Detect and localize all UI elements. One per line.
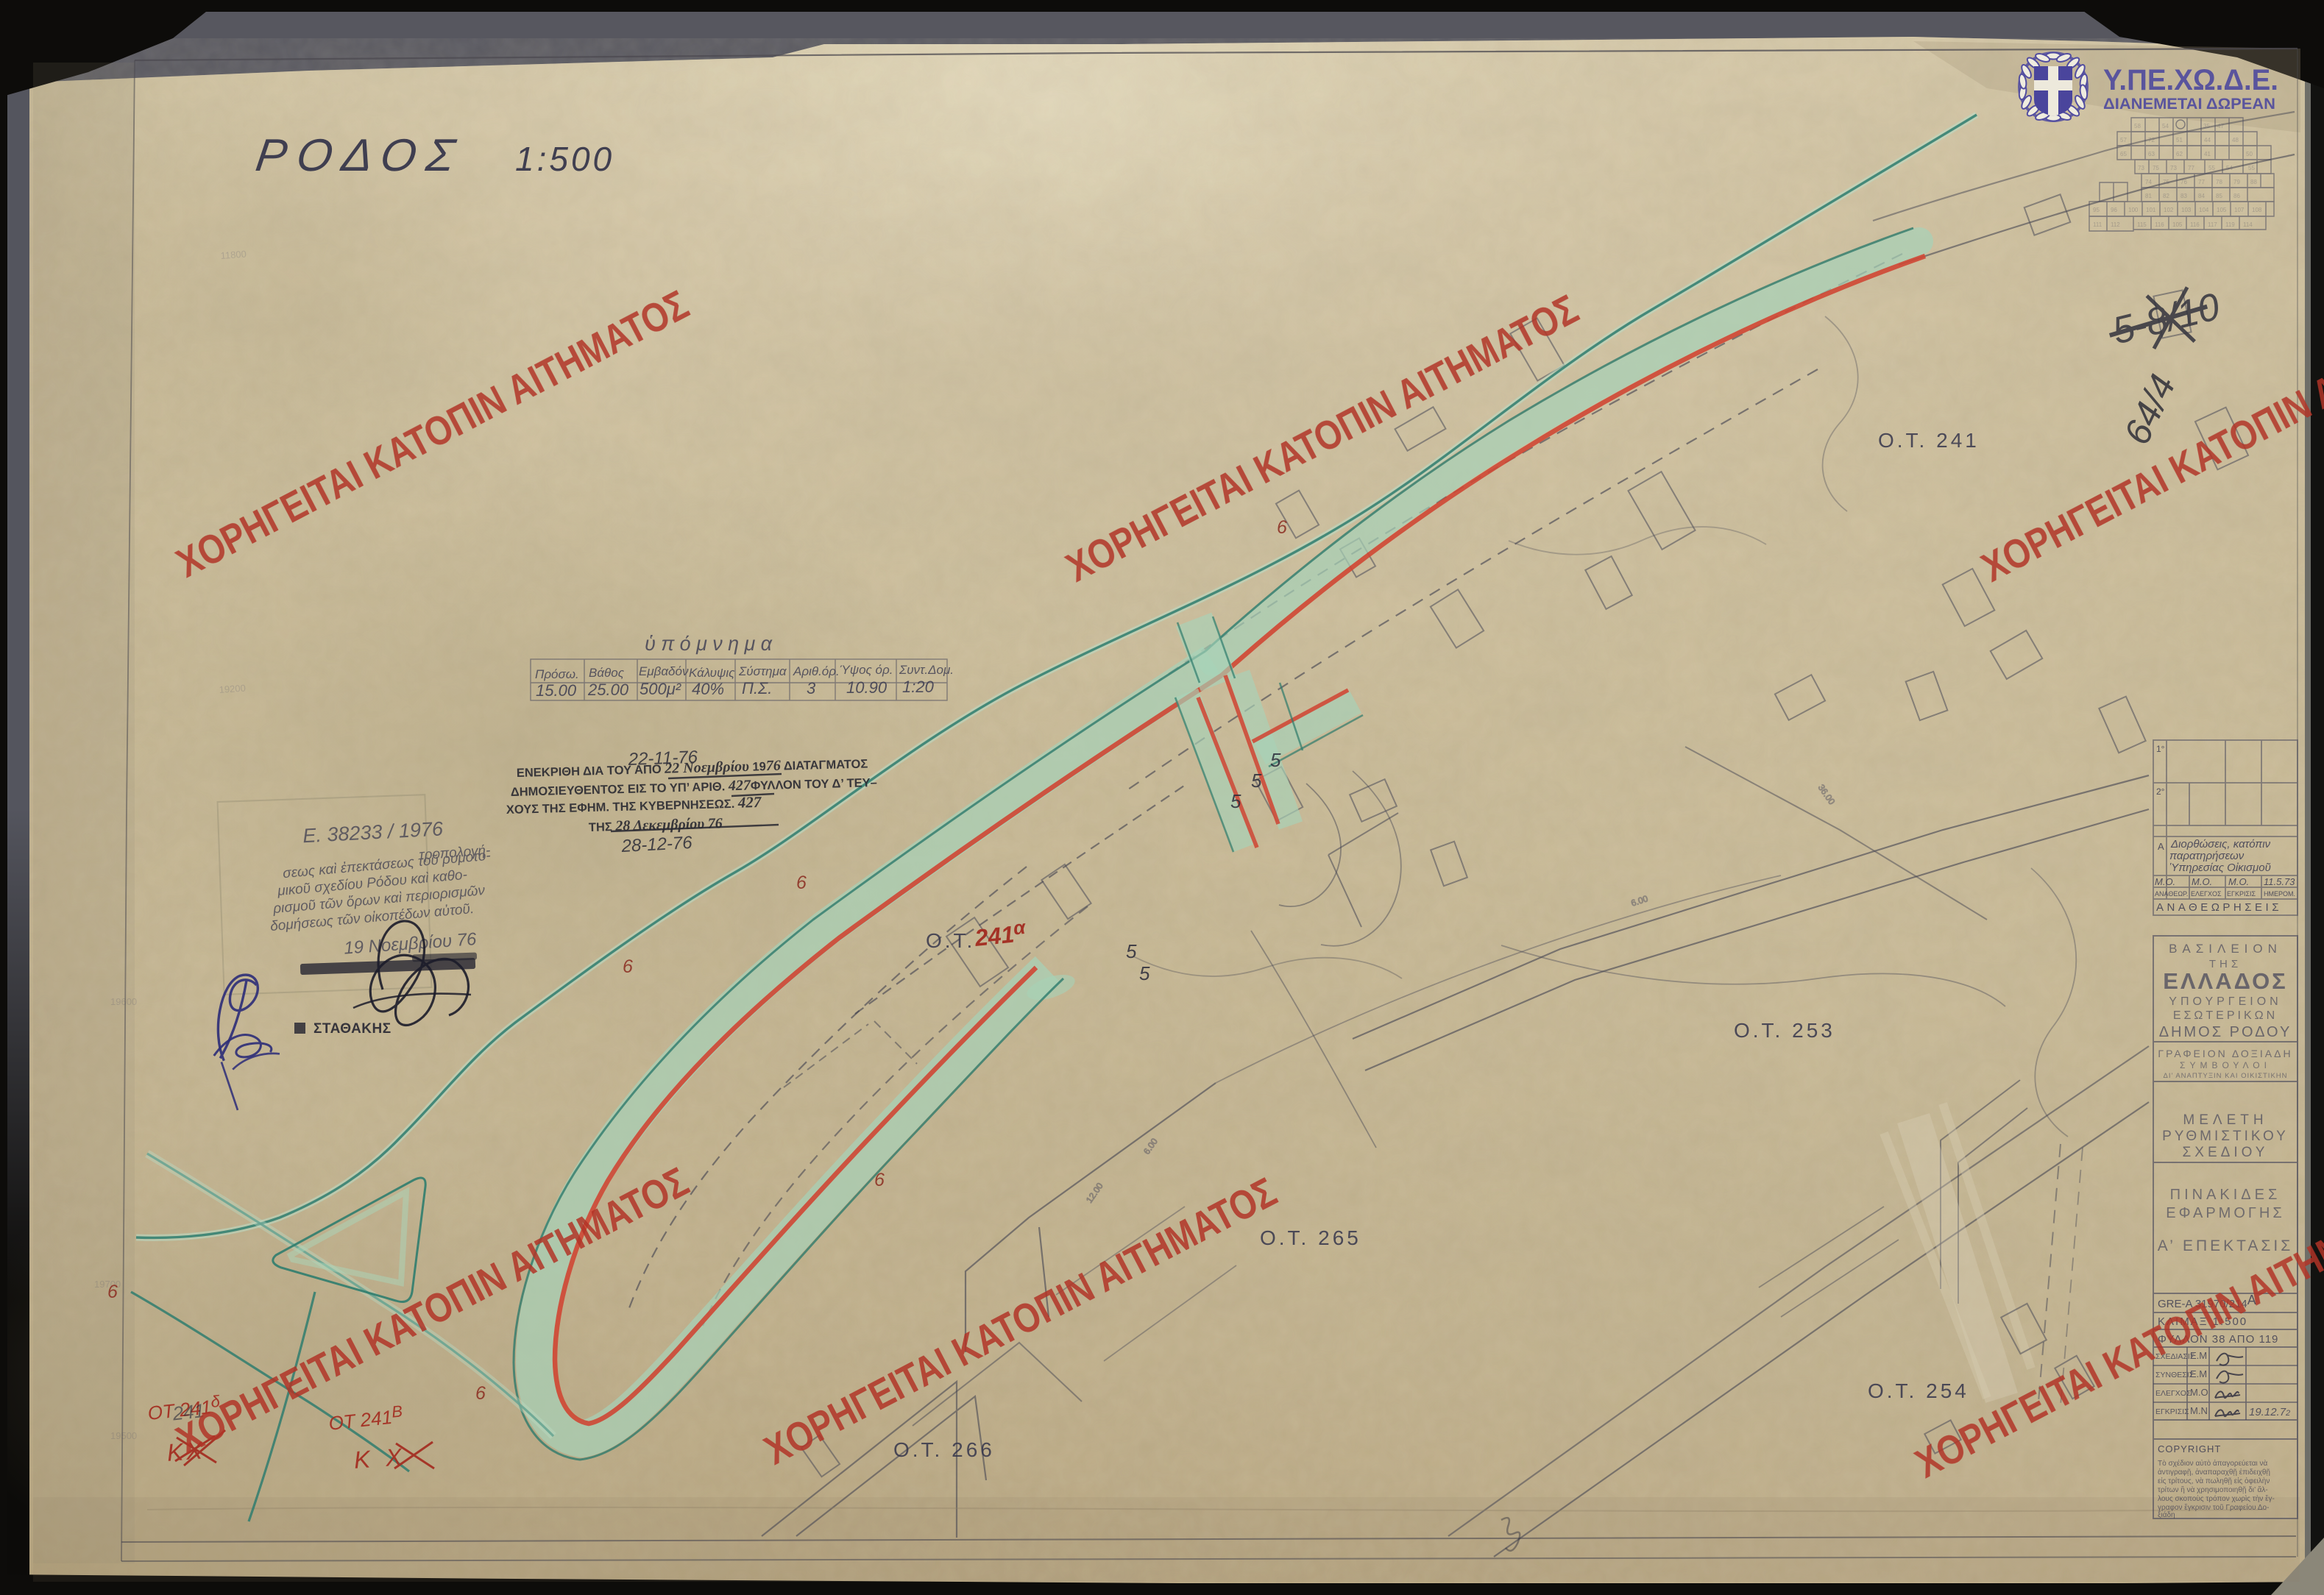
svg-text:114: 114 bbox=[2243, 221, 2253, 228]
svg-text:Αριθ.όρ.: Αριθ.όρ. bbox=[793, 664, 840, 678]
svg-text:Μ.Ν: Μ.Ν bbox=[2190, 1405, 2208, 1416]
svg-text:73: 73 bbox=[2138, 165, 2144, 171]
svg-text:72: 72 bbox=[2148, 137, 2155, 143]
svg-text:Συντ.Δομ.: Συντ.Δομ. bbox=[899, 663, 954, 677]
svg-text:3: 3 bbox=[807, 679, 816, 697]
svg-text:84: 84 bbox=[2198, 193, 2205, 199]
svg-text:Σύστημα: Σύστημα bbox=[738, 664, 787, 678]
svg-text:Π.Σ.: Π.Σ. bbox=[742, 679, 772, 697]
svg-text:Διορθώσεις, κατόπιν: Διορθώσεις, κατόπιν bbox=[2170, 838, 2271, 850]
svg-text:COPYRIGHT: COPYRIGHT bbox=[2158, 1443, 2221, 1454]
svg-text:19.12.72: 19.12.72 bbox=[2249, 1406, 2290, 1418]
svg-text:ΓΡΑΦΕΙΟΝ ΔΟΞΙΑΔΗ: ΓΡΑΦΕΙΟΝ ΔΟΞΙΑΔΗ bbox=[2158, 1048, 2292, 1059]
svg-text:Ε.Μ: Ε.Μ bbox=[2190, 1350, 2207, 1361]
svg-text:6: 6 bbox=[1277, 517, 1287, 538]
svg-text:107: 107 bbox=[2234, 207, 2245, 213]
svg-text:111: 111 bbox=[2093, 221, 2102, 228]
svg-text:58: 58 bbox=[2134, 123, 2141, 129]
svg-text:Α: Α bbox=[2158, 841, 2164, 852]
svg-text:19500: 19500 bbox=[110, 1430, 137, 1441]
svg-text:6: 6 bbox=[475, 1383, 486, 1404]
svg-text:ΡΟΔΟΣ: ΡΟΔΟΣ bbox=[252, 130, 467, 181]
svg-text:103: 103 bbox=[2181, 207, 2192, 213]
svg-text:Μ.Ο.: Μ.Ο. bbox=[2155, 876, 2175, 887]
svg-text:11.5.73: 11.5.73 bbox=[2264, 876, 2295, 887]
svg-text:Κάλυψις: Κάλυψις bbox=[689, 666, 735, 680]
svg-text:78: 78 bbox=[2216, 179, 2222, 185]
svg-text:5: 5 bbox=[1230, 790, 1241, 812]
svg-text:105: 105 bbox=[2217, 207, 2227, 213]
svg-text:81: 81 bbox=[2145, 193, 2152, 199]
svg-text:10.90: 10.90 bbox=[846, 678, 888, 697]
svg-text:O.T. 265: O.T. 265 bbox=[1260, 1226, 1361, 1249]
svg-text:100: 100 bbox=[2128, 207, 2139, 213]
svg-text:Ὑπηρεσίας Οἰκισμοῦ: Ὑπηρεσίας Οἰκισμοῦ bbox=[2169, 862, 2271, 874]
svg-text:6: 6 bbox=[796, 873, 807, 893]
svg-text:ΔΗΜΟΣ ΡΟΔΟΥ: ΔΗΜΟΣ ΡΟΔΟΥ bbox=[2159, 1024, 2292, 1040]
svg-text:ΗΜΕΡΟΜ.: ΗΜΕΡΟΜ. bbox=[2264, 890, 2295, 898]
svg-text:1:500: 1:500 bbox=[515, 140, 614, 178]
svg-text:105: 105 bbox=[2172, 221, 2183, 228]
svg-text:85: 85 bbox=[2216, 193, 2222, 199]
svg-text:44: 44 bbox=[2204, 137, 2211, 143]
svg-text:Ε.Μ: Ε.Μ bbox=[2190, 1368, 2207, 1379]
svg-text:Εμβαδόν: Εμβαδόν bbox=[639, 664, 689, 678]
svg-text:35: 35 bbox=[2203, 123, 2210, 129]
svg-text:Μ.Ο.: Μ.Ο. bbox=[2228, 876, 2249, 887]
svg-text:116: 116 bbox=[2155, 221, 2164, 228]
svg-text:76: 76 bbox=[2180, 179, 2187, 185]
svg-text:Βάθος: Βάθος bbox=[589, 666, 625, 680]
svg-text:Μ.Ο: Μ.Ο bbox=[2190, 1387, 2208, 1398]
svg-text:εἰς τρίτους, νὰ πωληθῇ εἰς ὀφε: εἰς τρίτους, νὰ πωληθῇ εἰς ὀφειλὴν bbox=[2158, 1477, 2270, 1485]
svg-text:101: 101 bbox=[2146, 207, 2156, 213]
svg-text:5: 5 bbox=[1139, 962, 1150, 984]
svg-text:ΡΥΘΜΙΣΤΙΚΟΥ: ΡΥΘΜΙΣΤΙΚΟΥ bbox=[2162, 1129, 2289, 1144]
svg-text:11800: 11800 bbox=[220, 249, 247, 261]
svg-text:47: 47 bbox=[2217, 123, 2224, 129]
svg-text:ΕΓΚΡΙΣΙΣ: ΕΓΚΡΙΣΙΣ bbox=[2155, 1407, 2189, 1416]
svg-text:ΕΣΩΤΕΡΙΚΩΝ: ΕΣΩΤΕΡΙΚΩΝ bbox=[2173, 1009, 2278, 1022]
svg-text:63: 63 bbox=[2148, 151, 2155, 157]
svg-text:116: 116 bbox=[2190, 221, 2200, 228]
svg-text:Μ.Ο.: Μ.Ο. bbox=[2192, 876, 2212, 887]
svg-text:74: 74 bbox=[2145, 179, 2152, 185]
svg-text:88: 88 bbox=[2250, 179, 2257, 185]
svg-text:55: 55 bbox=[2208, 165, 2215, 171]
svg-text:75: 75 bbox=[2163, 179, 2169, 185]
svg-text:57: 57 bbox=[2120, 137, 2127, 143]
svg-text:19200: 19200 bbox=[219, 683, 246, 695]
svg-text:6: 6 bbox=[874, 1170, 885, 1190]
svg-text:86: 86 bbox=[2233, 193, 2240, 199]
svg-text:λους σκοποὺς τρόπον χωρὶς τὴν: λους σκοποὺς τρόπον χωρὶς τὴν ἔγ- bbox=[2158, 1494, 2275, 1503]
svg-text:51: 51 bbox=[2176, 137, 2183, 143]
svg-text:O.T. 241: O.T. 241 bbox=[1878, 429, 1980, 452]
svg-text:5: 5 bbox=[1251, 770, 1262, 792]
svg-text:6: 6 bbox=[623, 956, 633, 977]
svg-text:75: 75 bbox=[2153, 165, 2159, 171]
svg-text:O.T. 253: O.T. 253 bbox=[1734, 1019, 1835, 1042]
svg-text:Υ.ΠΕ.ΧΩ.Δ.Ε.: Υ.ΠΕ.ΧΩ.Δ.Ε. bbox=[2103, 64, 2278, 96]
svg-text:82: 82 bbox=[2163, 193, 2169, 199]
svg-text:1:20: 1:20 bbox=[902, 678, 935, 696]
svg-text:O.T. 254: O.T. 254 bbox=[1868, 1379, 1969, 1402]
svg-text:48: 48 bbox=[2232, 137, 2239, 143]
svg-text:ΕΛΕΓΧΟΣ: ΕΛΕΓΧΟΣ bbox=[2191, 890, 2222, 898]
svg-text:παρατηρήσεων: παρατηρήσεων bbox=[2169, 850, 2245, 862]
svg-text:ΣΤΑΘΑΚΗΣ: ΣΤΑΘΑΚΗΣ bbox=[313, 1021, 392, 1037]
svg-text:65: 65 bbox=[2120, 151, 2127, 157]
svg-text:τρίτων ἢ νὰ χρησιμοποιηθῇ δι’: τρίτων ἢ νὰ χρησιμοποιηθῇ δι’ ἄλ- bbox=[2158, 1485, 2268, 1494]
svg-text:117: 117 bbox=[2208, 221, 2217, 228]
svg-text:22-11-76: 22-11-76 bbox=[627, 747, 698, 770]
svg-text:ΜΕΛΕΤΗ: ΜΕΛΕΤΗ bbox=[2183, 1112, 2267, 1128]
svg-text:77: 77 bbox=[2188, 165, 2194, 171]
svg-text:19600: 19600 bbox=[110, 996, 137, 1007]
svg-text:ΑΝΑΘΕΩΡ.: ΑΝΑΘΕΩΡ. bbox=[2155, 890, 2188, 898]
svg-text:ΕΛΕΓΧΟΣ: ΕΛΕΓΧΟΣ bbox=[2155, 1389, 2192, 1398]
svg-text:ΕΦΑΡΜΟΓΗΣ: ΕΦΑΡΜΟΓΗΣ bbox=[2166, 1205, 2284, 1221]
svg-text:77: 77 bbox=[2198, 179, 2205, 185]
svg-text:95: 95 bbox=[2093, 207, 2100, 213]
svg-text:ΒΑΣΙΛΕΙΟΝ: ΒΑΣΙΛΕΙΟΝ bbox=[2169, 942, 2282, 956]
svg-text:55: 55 bbox=[2248, 165, 2255, 171]
svg-text:15.00: 15.00 bbox=[536, 681, 577, 700]
svg-text:1°: 1° bbox=[2156, 744, 2165, 754]
svg-text:6: 6 bbox=[107, 1282, 118, 1302]
svg-text:102: 102 bbox=[2164, 207, 2174, 213]
svg-text:O.T. 266: O.T. 266 bbox=[893, 1438, 995, 1461]
svg-text:79: 79 bbox=[2233, 179, 2240, 185]
svg-text:112: 112 bbox=[2111, 221, 2120, 228]
svg-text:ἀντιγραφῇ, ἀναπαραχθῇ ἐπιδειχθ: ἀντιγραφῇ, ἀναπαραχθῇ ἐπιδειχθῇ bbox=[2158, 1468, 2270, 1477]
svg-text:5: 5 bbox=[1126, 940, 1137, 962]
svg-text:ξιάδη: ξιάδη bbox=[2158, 1510, 2175, 1519]
svg-text:104: 104 bbox=[2199, 207, 2209, 213]
svg-text:73: 73 bbox=[2170, 165, 2177, 171]
svg-text:41: 41 bbox=[2204, 151, 2211, 157]
svg-text:40%: 40% bbox=[692, 680, 724, 698]
svg-text:Τὸ σχέδιον αὐτὸ ἀπαγορεύεται ν: Τὸ σχέδιον αὐτὸ ἀπαγορεύεται νὰ bbox=[2158, 1459, 2268, 1468]
svg-text:62: 62 bbox=[2176, 151, 2183, 157]
svg-text:108: 108 bbox=[2252, 207, 2262, 213]
svg-text:ΣΥΜΒΟΥΛΟΙ: ΣΥΜΒΟΥΛΟΙ bbox=[2180, 1060, 2271, 1070]
svg-text:Κ Χ: Κ Χ bbox=[353, 1443, 408, 1474]
svg-text:54: 54 bbox=[2162, 123, 2169, 129]
svg-text:ΕΛΛΑΔΟΣ: ΕΛΛΑΔΟΣ bbox=[2163, 968, 2288, 994]
svg-text:96: 96 bbox=[2111, 207, 2117, 213]
svg-text:ΕΓΚΡΙΣΙΣ: ΕΓΚΡΙΣΙΣ bbox=[2227, 890, 2256, 898]
svg-text:ΑΝΑΘΕΩΡΗΣΕΙΣ: ΑΝΑΘΕΩΡΗΣΕΙΣ bbox=[2156, 901, 2282, 914]
svg-text:ΥΠΟΥΡΓΕΙΟΝ: ΥΠΟΥΡΓΕΙΟΝ bbox=[2169, 995, 2281, 1008]
svg-text:83: 83 bbox=[2180, 193, 2187, 199]
svg-text:ΣΥΝΘΕΣΙΣ: ΣΥΝΘΕΣΙΣ bbox=[2155, 1371, 2194, 1379]
svg-text:5: 5 bbox=[1270, 749, 1281, 771]
svg-text:500μ²: 500μ² bbox=[640, 680, 681, 698]
svg-text:ΠΙΝΑΚΙΔΕΣ: ΠΙΝΑΚΙΔΕΣ bbox=[2170, 1187, 2281, 1203]
svg-text:ΔΙΑΝΕΜΕΤΑΙ ΔΩΡΕΑΝ: ΔΙΑΝΕΜΕΤΑΙ ΔΩΡΕΑΝ bbox=[2103, 96, 2275, 113]
svg-text:Πρόσω.: Πρόσω. bbox=[535, 667, 579, 681]
svg-text:28-12-76: 28-12-76 bbox=[620, 833, 693, 856]
svg-text:25.00: 25.00 bbox=[587, 681, 629, 699]
svg-text:O.T.: O.T. bbox=[926, 929, 975, 952]
svg-text:Α’ ΕΠΕΚΤΑΣΙΣ: Α’ ΕΠΕΚΤΑΣΙΣ bbox=[2158, 1237, 2293, 1254]
svg-text:Ύψος όρ.: Ύψος όρ. bbox=[839, 663, 893, 677]
svg-text:54: 54 bbox=[2226, 165, 2233, 171]
svg-text:ΔΙ’ ΑΝΑΠΤΥΞΙΝ ΚΑΙ ΟΙΚΙΣΤΙΚΗΝ: ΔΙ’ ΑΝΑΠΤΥΞΙΝ ΚΑΙ ΟΙΚΙΣΤΙΚΗΝ bbox=[2163, 1072, 2287, 1080]
svg-text:115: 115 bbox=[2137, 221, 2147, 228]
svg-text:50: 50 bbox=[2246, 151, 2253, 157]
svg-text:ΣΧΕΔΙΟΥ: ΣΧΕΔΙΟΥ bbox=[2183, 1145, 2269, 1160]
svg-text:2°: 2° bbox=[2156, 786, 2165, 797]
svg-text:119: 119 bbox=[2225, 221, 2235, 228]
